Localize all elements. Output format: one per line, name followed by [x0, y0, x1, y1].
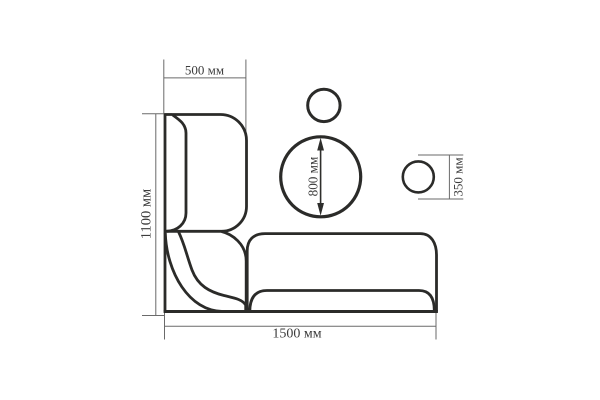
svg-text:500 мм: 500 мм [185, 62, 224, 77]
svg-text:1500 мм: 1500 мм [272, 327, 321, 342]
svg-text:800 мм: 800 мм [305, 156, 320, 196]
svg-text:350 мм: 350 мм [450, 157, 465, 196]
svg-text:1100 мм: 1100 мм [138, 189, 154, 239]
